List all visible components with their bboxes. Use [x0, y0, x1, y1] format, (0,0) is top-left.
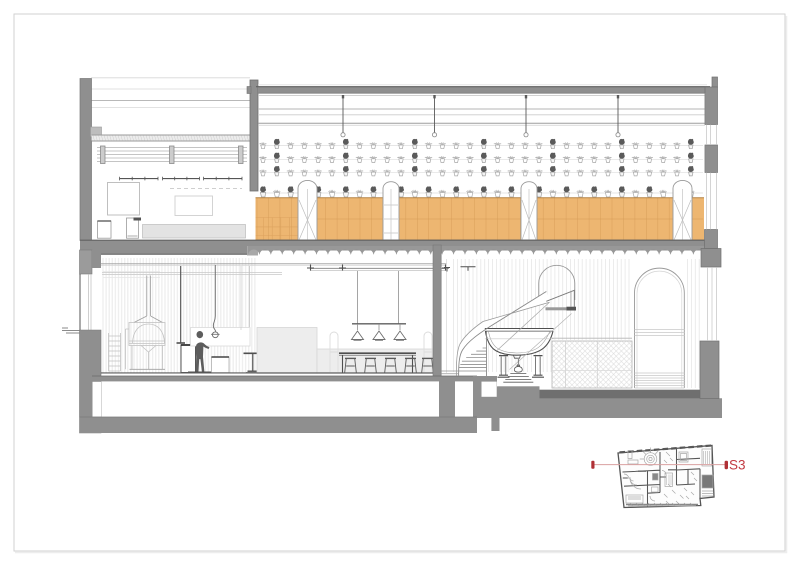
- svg-text:S3: S3: [729, 458, 746, 473]
